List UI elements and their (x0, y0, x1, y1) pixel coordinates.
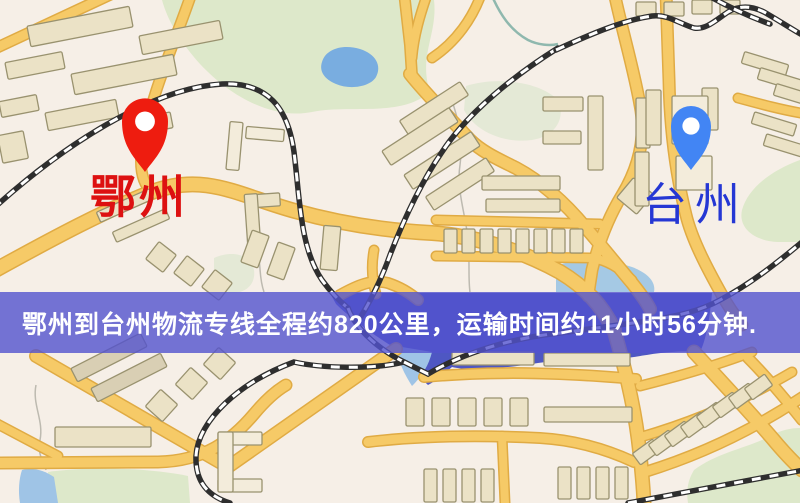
route-info-banner: 鄂州到台州物流专线全程约820公里，运输时间约11小时56分钟. (0, 292, 800, 353)
map-image: 鄂州到台州物流专线全程约820公里，运输时间约11小时56分钟. 鄂州 台州 (0, 0, 800, 503)
route-info-text: 鄂州到台州物流专线全程约820公里，运输时间约11小时56分钟. (22, 305, 757, 341)
map-artwork (0, 0, 800, 503)
